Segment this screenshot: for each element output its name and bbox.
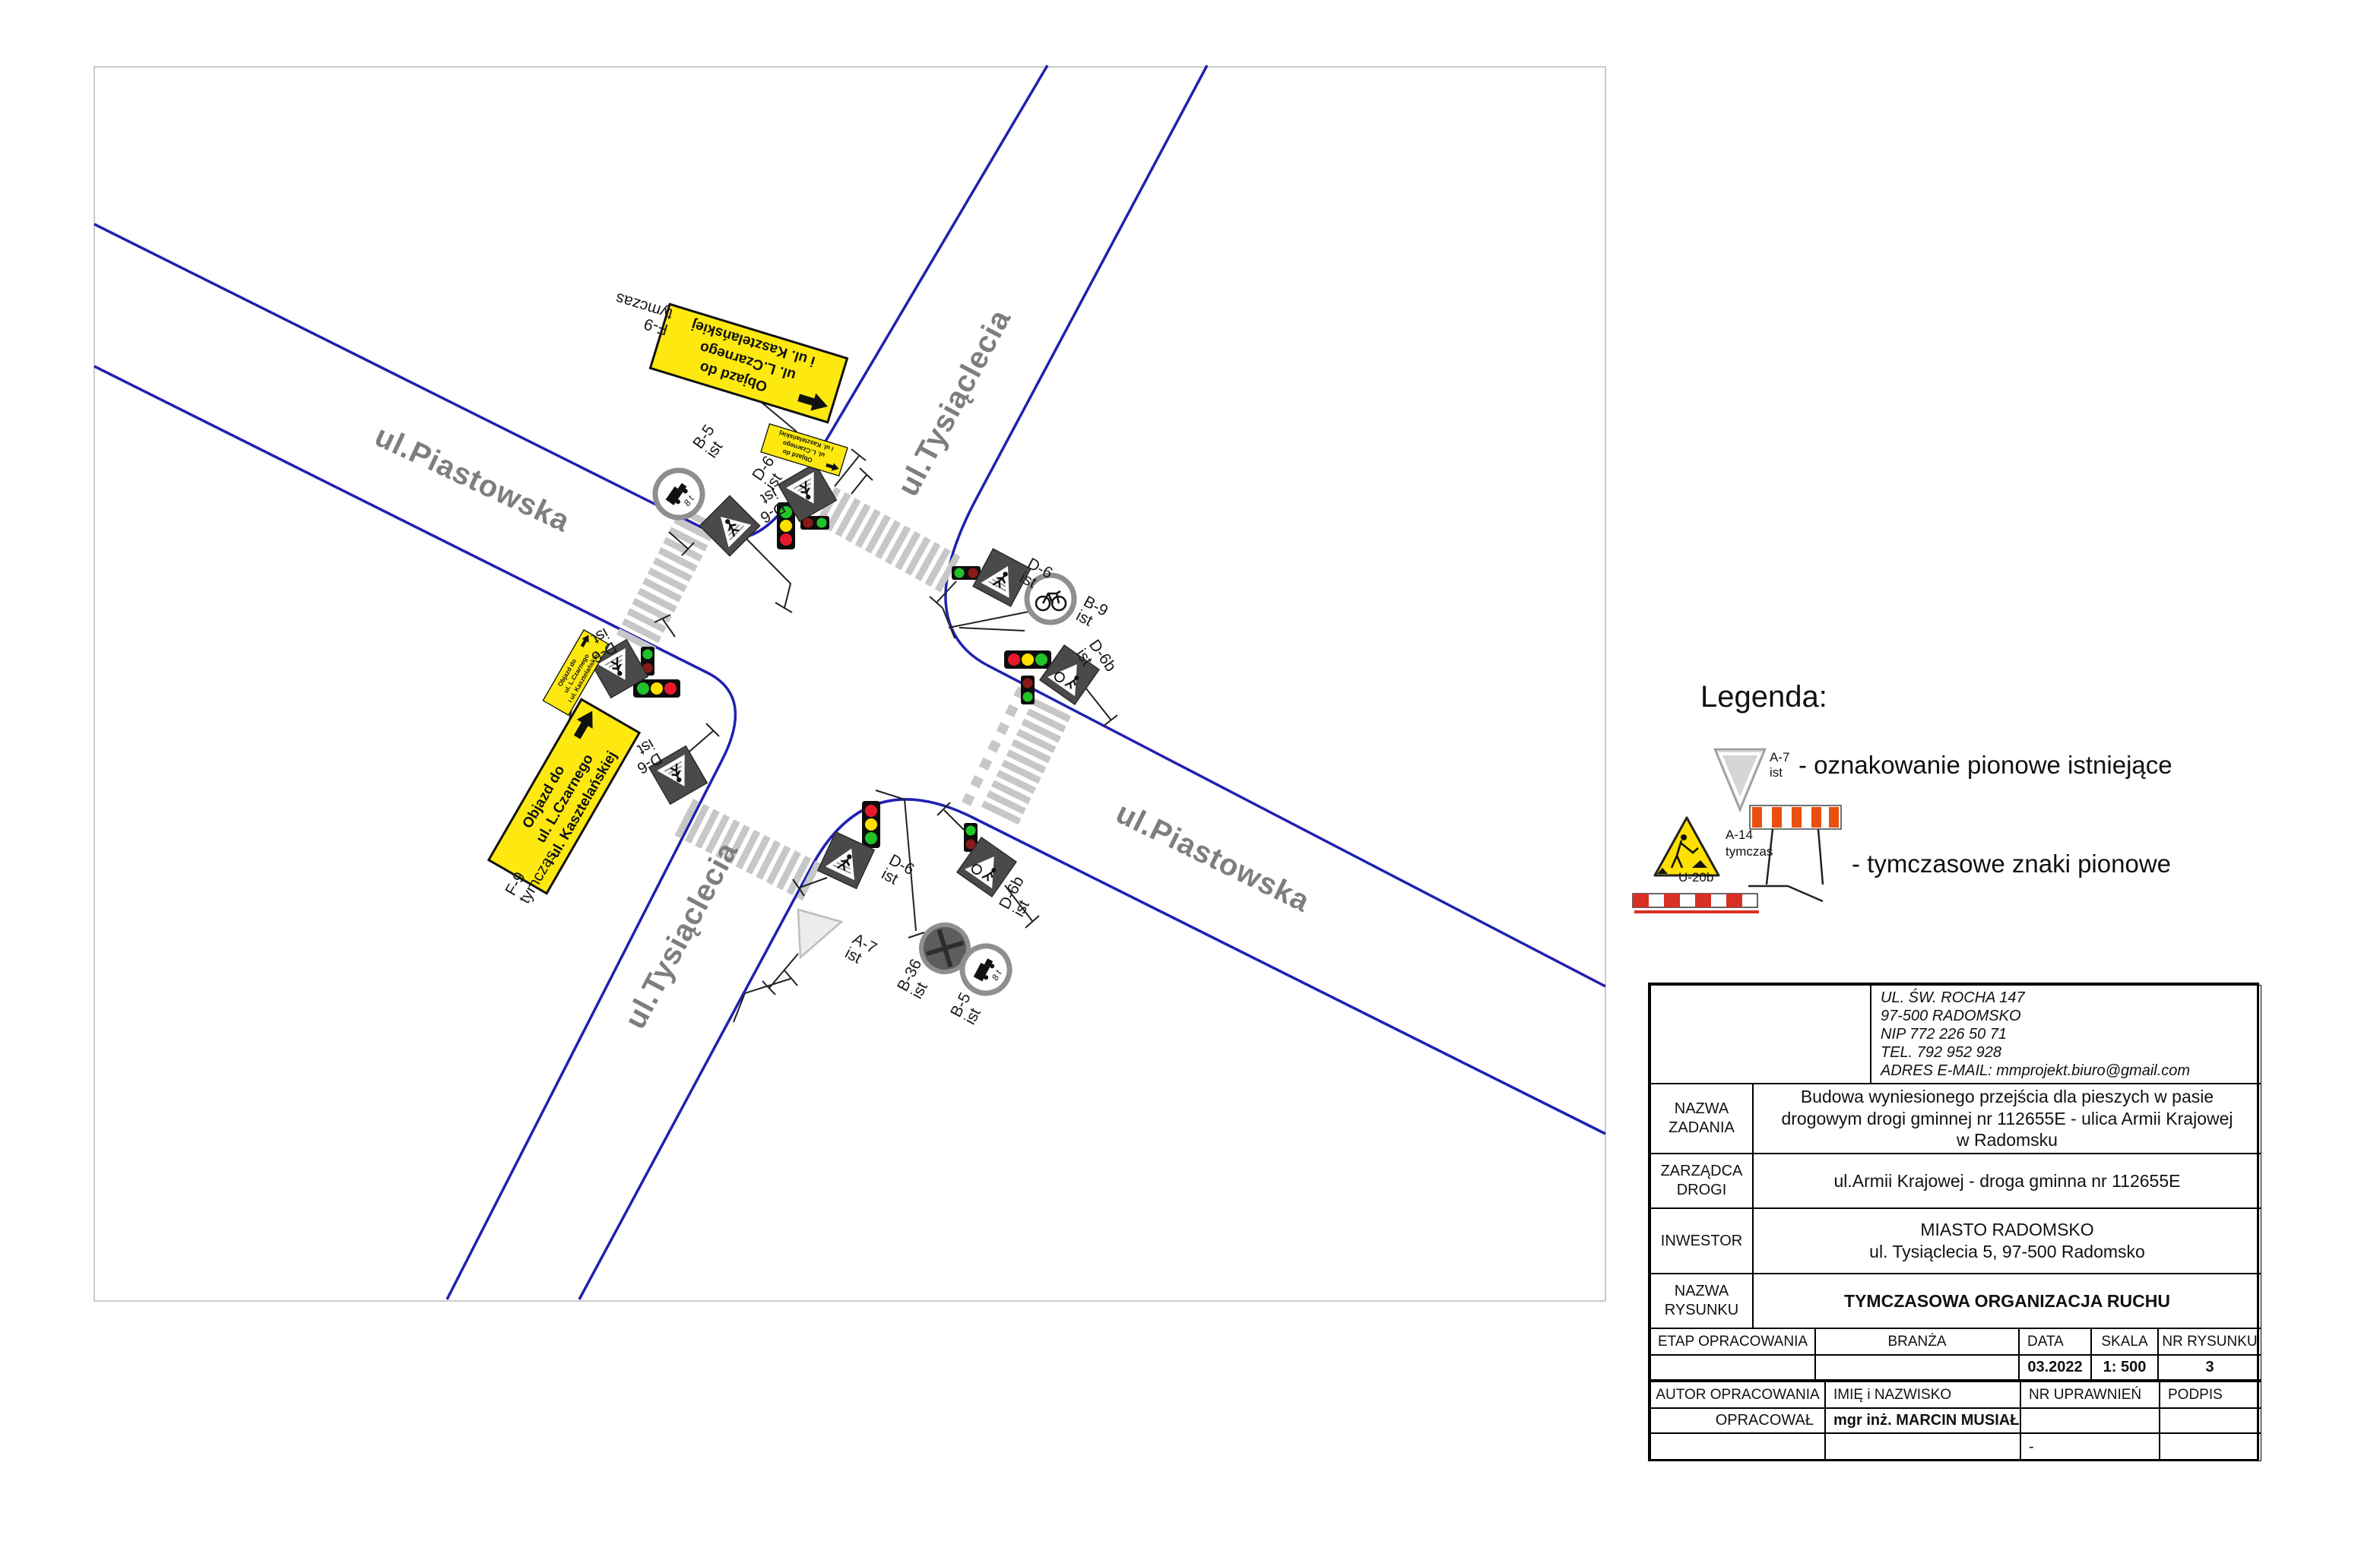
f9-detour-board-icon: [489, 699, 639, 893]
branza-value: [1815, 1355, 2019, 1382]
empty-cell: [2160, 1433, 2261, 1461]
sheet: 8 t Objazd do ul. L.Czarnego i ul. Kaszt…: [0, 0, 2380, 1554]
address-line: ADRES E-MAIL: mmprojekt.biuro@gmail.com: [1881, 1062, 2190, 1080]
d6-sign-icon: [699, 495, 759, 555]
address-line: NIP 772 226 50 71: [1881, 1025, 2007, 1043]
uprawnienia-value: -: [2020, 1433, 2160, 1461]
data-value: 03.2022: [2019, 1355, 2091, 1382]
empty-cell: [1825, 1433, 2020, 1461]
legend-u20b-code: U-20b: [1678, 870, 1713, 885]
legend-a7-status: ist: [1770, 765, 1783, 780]
road-edge-se-s: [579, 799, 1605, 1299]
address-line: 97-500 RADOMSKO: [1881, 1007, 2021, 1025]
legend-existing-text: - oznakowanie pionowe istniejące: [1798, 751, 2172, 779]
nazwa-zadania-value: Budowa wyniesionego przejścia dla pieszy…: [1753, 1084, 2261, 1154]
signal-east-vehicle-icon: [1004, 650, 1051, 669]
road-edges: [94, 65, 1605, 1299]
skala-value: 1: 500: [2091, 1355, 2158, 1382]
branza-label: BRANŻA: [1815, 1328, 2019, 1355]
company-address: UL. ŚW. ROCHA 147 97-500 RADOMSKO NIP 77…: [1871, 985, 2261, 1084]
address-line: TEL. 792 952 928: [1881, 1043, 2001, 1062]
inwestor-label: INWESTOR: [1650, 1208, 1753, 1274]
zarzadca-label: ZARZĄDCA DROGI: [1650, 1154, 1753, 1208]
imie-label: IMIĘ i NAZWISKO: [1825, 1382, 2020, 1408]
crosswalk-east: [981, 698, 1071, 825]
legend-a7-code: A-7: [1770, 750, 1789, 764]
f9-detour-board-icon: [650, 304, 847, 422]
inwestor-line1: MIASTO RADOMSKO: [1920, 1219, 2093, 1241]
autor-label: AUTOR OPRACOWANIA: [1650, 1382, 1825, 1408]
street-label-tysiaclecia-s: ul.Tysiąclecia: [618, 837, 744, 1034]
legend-a14-code: A-14: [1726, 828, 1753, 842]
legend-temporary-text: - tymczasowe znaki pionowe: [1852, 850, 2171, 878]
opracowal-value: mgr inż. MARCIN MUSIAŁ: [1825, 1408, 2020, 1433]
skala-label: SKALA: [2091, 1328, 2158, 1355]
nazwa-rysunku-label: NAZWA RYSUNKU: [1650, 1274, 1753, 1328]
title-block: UL. ŚW. ROCHA 147 97-500 RADOMSKO NIP 77…: [1648, 983, 2259, 1461]
opracowal-podpis: [2160, 1408, 2261, 1433]
etap-label: ETAP OPRACOWANIA: [1650, 1328, 1815, 1355]
road-edge-n-se: [946, 65, 1605, 986]
opracowal-label: OPRACOWAŁ: [1650, 1408, 1825, 1433]
nr-rysunku-label: NR RYSUNKU: [2158, 1328, 2261, 1355]
signal-east-ped-icon: [1021, 676, 1035, 704]
drawing-border: [94, 67, 1605, 1301]
zarzadca-value: ul.Armii Krajowej - droga gminna nr 1126…: [1753, 1154, 2261, 1208]
sign-status: tymczas: [613, 290, 674, 324]
address-line: UL. ŚW. ROCHA 147: [1881, 989, 2025, 1007]
legend: Legenda: A-7 ist - oznakowanie pionowe i…: [1633, 680, 2172, 912]
nazwa-rysunku-value: TYMCZASOWA ORGANIZACJA RUCHU: [1753, 1274, 2261, 1328]
nr-rysunku-value: 3: [2158, 1355, 2261, 1382]
signal-south-vehicle-icon: [862, 801, 880, 848]
nazwa-zadania-label: NAZWA ZADANIA: [1650, 1084, 1753, 1154]
signal-west-vehicle-icon: [633, 679, 680, 698]
logo-cell: [1650, 985, 1871, 1084]
legend-title: Legenda:: [1700, 680, 1827, 714]
crosswalk-north: [815, 487, 960, 593]
etap-value: [1650, 1355, 1815, 1382]
data-label: DATA: [2019, 1328, 2091, 1355]
empty-cell: [1650, 1433, 1825, 1461]
a7-sign-icon: [798, 910, 841, 957]
podpis-label: PODPIS: [2160, 1382, 2261, 1408]
opracowal-uprawnienia: [2020, 1408, 2160, 1433]
signal-east-ped2-icon: [952, 566, 981, 580]
nr-uprawnien-label: NR UPRAWNIEŃ: [2020, 1382, 2160, 1408]
street-label-piastowska-se: ul.Piastowska: [1111, 796, 1315, 919]
inwestor-value: MIASTO RADOMSKO ul. Tysiąclecia 5, 97-50…: [1753, 1208, 2261, 1274]
legend-a14-status: tymczas: [1726, 844, 1773, 859]
inwestor-line2: ul. Tysiąclecia 5, 97-500 Radomsko: [1869, 1241, 2145, 1263]
street-label-tysiaclecia-n: ul.Tysiąclecia: [891, 304, 1017, 502]
road-edge-s-nw: [94, 366, 735, 1299]
